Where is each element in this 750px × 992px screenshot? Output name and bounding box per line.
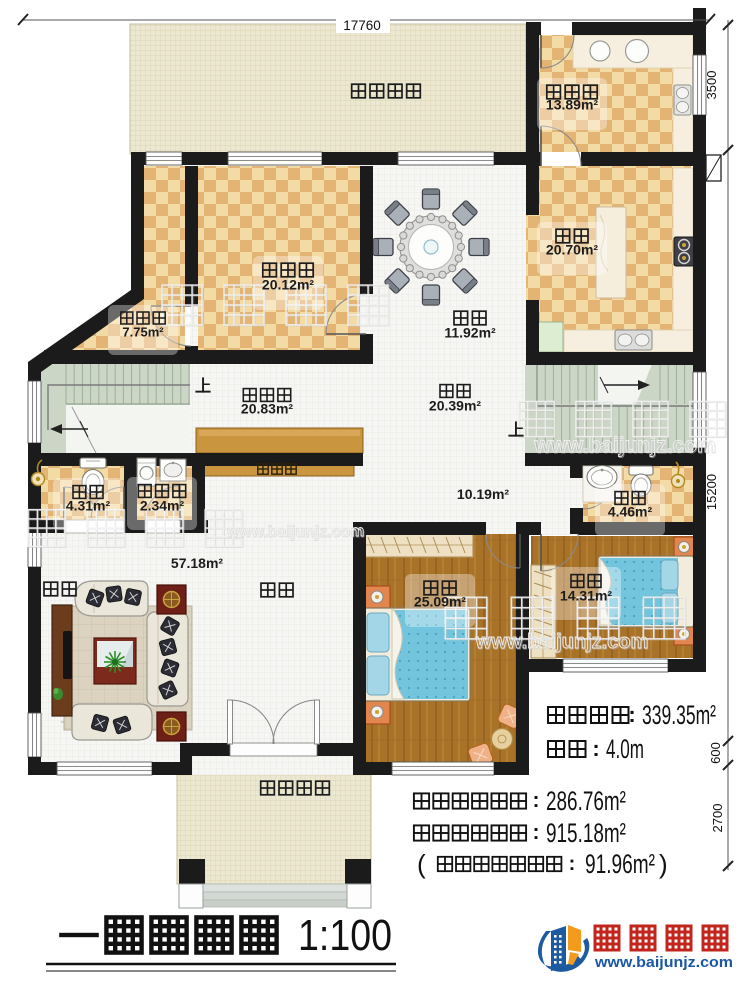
svg-text:915.18m²: 915.18m² <box>546 818 626 848</box>
svg-text:14.31m²: 14.31m² <box>560 588 612 604</box>
svg-text:www.baijunjz.com: www.baijunjz.com <box>594 954 733 971</box>
svg-text:3500: 3500 <box>704 71 719 100</box>
svg-text:339.35m²: 339.35m² <box>642 700 716 730</box>
svg-text:(: ( <box>417 849 426 879</box>
svg-text:91.96m²: 91.96m² <box>585 849 655 879</box>
svg-text:2.34m²: 2.34m² <box>140 498 185 514</box>
svg-text:1:100: 1:100 <box>298 911 392 960</box>
svg-text:4.0m: 4.0m <box>606 734 644 764</box>
svg-text::: : <box>569 853 576 875</box>
svg-text:20.12m²: 20.12m² <box>262 277 314 293</box>
svg-text:www.baijunjz.com: www.baijunjz.com <box>225 523 364 540</box>
svg-text::: : <box>592 736 599 761</box>
svg-text:4.31m²: 4.31m² <box>66 498 111 514</box>
svg-text:7.75m²: 7.75m² <box>122 325 164 340</box>
svg-text::: : <box>533 789 540 812</box>
svg-text:10.19m²: 10.19m² <box>457 486 509 502</box>
svg-text:www.baijunjz.com: www.baijunjz.com <box>533 434 715 457</box>
svg-text:11.92m²: 11.92m² <box>444 325 496 341</box>
svg-text:4.46m²: 4.46m² <box>608 504 653 520</box>
svg-text:20.39m²: 20.39m² <box>429 398 481 414</box>
svg-text::: : <box>628 702 635 727</box>
svg-text:www.baijunjz.com: www.baijunjz.com <box>475 631 649 653</box>
svg-text:2700: 2700 <box>710 804 725 833</box>
svg-text:57.18m²: 57.18m² <box>171 555 223 571</box>
svg-text:): ) <box>659 849 668 879</box>
svg-text:20.70m²: 20.70m² <box>546 242 598 258</box>
svg-text:20.83m²: 20.83m² <box>241 401 293 417</box>
svg-text:17760: 17760 <box>343 18 381 33</box>
svg-text:15200: 15200 <box>704 474 719 510</box>
svg-text:25.09m²: 25.09m² <box>414 594 466 610</box>
svg-text::: : <box>533 821 540 844</box>
svg-text:13.89m²: 13.89m² <box>546 97 598 113</box>
svg-text:286.76m²: 286.76m² <box>546 786 626 816</box>
svg-text:600: 600 <box>708 742 723 764</box>
